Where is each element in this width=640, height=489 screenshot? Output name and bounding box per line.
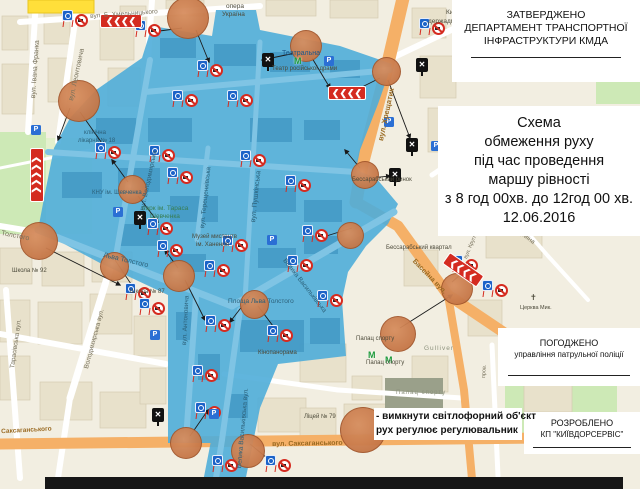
portable-road-signs-icon bbox=[265, 455, 291, 476]
map-label: Ліцей № 79 bbox=[304, 414, 336, 420]
no-entry-sign-icon bbox=[162, 149, 175, 162]
no-entry-sign-icon bbox=[253, 154, 266, 167]
portable-road-signs-icon bbox=[157, 240, 183, 261]
disabled-traffic-light-circle bbox=[163, 260, 195, 292]
no-entry-sign-icon bbox=[218, 319, 231, 332]
disabled-traffic-light-circle bbox=[167, 0, 209, 39]
map-label: вул. Антоновича bbox=[182, 296, 191, 346]
map-label: опера bbox=[226, 4, 244, 11]
map-label: Володимирська вул. bbox=[84, 309, 106, 370]
no-entry-sign-icon bbox=[280, 329, 293, 342]
no-entry-sign-icon bbox=[210, 64, 223, 77]
mandatory-direction-sign-icon bbox=[204, 260, 215, 271]
disabled-traffic-light-circle bbox=[380, 316, 416, 352]
map-label: Палац спорту bbox=[396, 390, 446, 396]
developed-line: РОЗРОБЛЕНО bbox=[524, 418, 640, 428]
map-label: Тарасівська вул. bbox=[10, 319, 23, 369]
mandatory-direction-sign-icon bbox=[157, 240, 168, 251]
map-label: вул. Хрещатик bbox=[377, 87, 396, 141]
map-label: Шевченка bbox=[150, 214, 180, 221]
agreed-line: управління патрульної поліції bbox=[498, 350, 640, 359]
portable-road-signs-icon bbox=[240, 150, 266, 171]
map-label: вул. Саксаганського bbox=[272, 440, 343, 448]
portable-road-signs-icon bbox=[147, 218, 173, 239]
map-label: Палац спорту bbox=[366, 360, 404, 366]
map-label: Музей мистецтв bbox=[192, 234, 237, 240]
approved-line: ЗАТВЕРДЖЕНО bbox=[452, 9, 640, 22]
no-entry-sign-icon bbox=[75, 14, 88, 27]
map-label: ім. Ханенків bbox=[196, 242, 229, 248]
map-label: вул. Терещенківська bbox=[200, 167, 213, 229]
no-entry-sign-icon bbox=[185, 94, 198, 107]
portable-road-signs-icon bbox=[62, 10, 88, 31]
map-label: лікарня № 18 bbox=[78, 138, 115, 144]
portable-road-signs-icon bbox=[172, 90, 198, 111]
map-label: Площа Льва Толстого bbox=[228, 299, 294, 306]
signature-line bbox=[471, 57, 621, 58]
portable-road-signs-icon bbox=[192, 365, 218, 386]
map-label: Палац спорту bbox=[356, 336, 394, 342]
no-entry-sign-icon bbox=[298, 179, 311, 192]
title-line: маршу рівності bbox=[438, 171, 640, 190]
map-label: Театральна bbox=[282, 50, 320, 57]
mandatory-direction-sign-icon bbox=[205, 315, 216, 326]
parking-sign-icon: Р bbox=[324, 56, 334, 66]
bottom-bar bbox=[45, 477, 623, 489]
portable-road-signs-icon bbox=[139, 298, 165, 319]
map-label: Школа № 92 bbox=[12, 268, 47, 274]
disabled-traffic-light-circle bbox=[372, 57, 401, 86]
disabled-traffic-light-circle bbox=[351, 161, 379, 189]
mandatory-direction-sign-icon bbox=[139, 298, 150, 309]
metro-station-icon: М bbox=[294, 56, 302, 66]
no-entry-sign-icon bbox=[495, 284, 508, 297]
title-line: обмеження руху bbox=[438, 133, 640, 152]
parking-sign-icon: Р bbox=[31, 125, 41, 135]
map-label: вул. Пушкінська bbox=[250, 171, 262, 223]
traffic-restriction-scheme: ❮❮❮❮❮❮❮❮❮❮❮❮❮❮❮❮❮✕✕✕✕✕✕РРРРРРРРМММвул. І… bbox=[0, 0, 640, 489]
crossed-traffic-light-icon: ✕ bbox=[152, 408, 164, 422]
map-label: клінічна bbox=[84, 130, 106, 136]
title-line: під час проведення bbox=[438, 152, 640, 171]
developed-line: КП "КИЇВДОРСЕРВІС" bbox=[524, 430, 640, 439]
legend-line: рух регулює регулювальник bbox=[376, 424, 520, 438]
mandatory-direction-sign-icon bbox=[302, 225, 313, 236]
disabled-traffic-light-circle bbox=[170, 427, 202, 459]
mandatory-direction-sign-icon bbox=[240, 150, 251, 161]
disabled-traffic-light-circle bbox=[337, 222, 364, 249]
legend: - вимкнути світлофорний об'єкт рух регул… bbox=[374, 408, 522, 440]
mandatory-direction-sign-icon bbox=[167, 167, 178, 178]
map-label: Кінопанорама bbox=[258, 350, 297, 356]
portable-road-signs-icon bbox=[95, 142, 121, 163]
map-label: вул. Івана Франка bbox=[30, 40, 41, 99]
map-label: пров. bbox=[482, 364, 488, 378]
mandatory-direction-sign-icon bbox=[482, 280, 493, 291]
agreed-line: ПОГОДЖЕНО bbox=[498, 338, 640, 348]
mandatory-direction-sign-icon bbox=[227, 90, 238, 101]
portable-road-signs-icon bbox=[212, 455, 238, 476]
mandatory-direction-sign-icon bbox=[197, 60, 208, 71]
map-label: Бессарабський квартал bbox=[386, 245, 452, 251]
portable-road-signs-icon bbox=[205, 315, 231, 336]
disabled-traffic-light-circle bbox=[58, 80, 100, 122]
portable-road-signs-icon bbox=[167, 167, 193, 188]
mandatory-direction-sign-icon bbox=[267, 325, 278, 336]
portable-road-signs-icon bbox=[197, 60, 223, 81]
title-line: з 8 год 00хв. до 12год 00 хв. bbox=[438, 190, 640, 209]
no-entry-sign-icon bbox=[330, 294, 343, 307]
parking-sign-icon: Р bbox=[267, 235, 277, 245]
map-label: Школа № 87 bbox=[130, 289, 165, 295]
legend-line: - вимкнути світлофорний об'єкт bbox=[376, 410, 520, 424]
crossed-traffic-light-icon: ✕ bbox=[262, 53, 274, 67]
parking-sign-icon: Р bbox=[150, 330, 160, 340]
map-label: вул. Саксаганського bbox=[0, 427, 52, 437]
closure-chevron-barrier-icon: ❮❮❮❮ bbox=[328, 86, 366, 100]
mandatory-direction-sign-icon bbox=[172, 90, 183, 101]
no-entry-sign-icon bbox=[278, 459, 291, 472]
no-entry-sign-icon bbox=[170, 244, 183, 257]
map-label: ✝ bbox=[530, 294, 537, 302]
approved-panel: ЗАТВЕРДЖЕНО ДЕПАРТАМЕНТ ТРАНСПОРТНОЇ ІНФ… bbox=[452, 0, 640, 82]
portable-road-signs-icon bbox=[285, 175, 311, 196]
parking-sign-icon: Р bbox=[113, 207, 123, 217]
crossed-traffic-light-icon: ✕ bbox=[406, 138, 418, 152]
title-date: 12.06.2016 bbox=[438, 209, 640, 228]
no-entry-sign-icon bbox=[205, 369, 218, 382]
crossed-traffic-light-icon: ✕ bbox=[416, 58, 428, 72]
mandatory-direction-sign-icon bbox=[265, 455, 276, 466]
no-entry-sign-icon bbox=[160, 222, 173, 235]
portable-road-signs-icon bbox=[204, 260, 230, 281]
title-line: Схема bbox=[438, 114, 640, 133]
developed-panel: РОЗРОБЛЕНО КП "КИЇВДОРСЕРВІС" bbox=[524, 412, 640, 454]
portable-road-signs-icon bbox=[267, 325, 293, 346]
mandatory-direction-sign-icon bbox=[285, 175, 296, 186]
map-label: Театр російської драми bbox=[272, 66, 337, 72]
closure-chevron-barrier-icon: ❮❮❮❮❮ bbox=[30, 148, 44, 202]
crossed-traffic-light-icon: ✕ bbox=[134, 211, 146, 225]
no-entry-sign-icon bbox=[235, 239, 248, 252]
portable-road-signs-icon bbox=[302, 225, 328, 246]
approved-line: ДЕПАРТАМЕНТ ТРАНСПОРТНОЇ bbox=[452, 22, 640, 35]
mandatory-direction-sign-icon bbox=[192, 365, 203, 376]
no-entry-sign-icon bbox=[148, 24, 161, 37]
no-entry-sign-icon bbox=[240, 94, 253, 107]
agreed-panel: ПОГОДЖЕНО управління патрульної поліції bbox=[498, 328, 640, 386]
no-entry-sign-icon bbox=[217, 264, 230, 277]
no-entry-sign-icon bbox=[108, 146, 121, 159]
mandatory-direction-sign-icon bbox=[62, 10, 73, 21]
signature-line bbox=[533, 447, 631, 448]
map-label: парк ім. Тараса bbox=[142, 206, 188, 213]
metro-station-icon: М bbox=[368, 350, 376, 360]
map-label: Бессарабський ринок bbox=[352, 177, 412, 183]
map-label: Україна bbox=[222, 12, 245, 19]
no-entry-sign-icon bbox=[152, 302, 165, 315]
map-label: Церква Мик. bbox=[520, 306, 552, 312]
map-label: КНУ ім. Шевченка bbox=[92, 190, 142, 196]
mandatory-direction-sign-icon bbox=[195, 402, 206, 413]
no-entry-sign-icon bbox=[300, 259, 313, 272]
scheme-title-panel: Схема обмеження руху під час проведення … bbox=[438, 106, 640, 236]
no-entry-sign-icon bbox=[180, 171, 193, 184]
mandatory-direction-sign-icon bbox=[212, 455, 223, 466]
parking-sign-icon: Р bbox=[209, 409, 219, 419]
portable-road-signs-icon bbox=[227, 90, 253, 111]
approved-line: ІНФРАСТРУКТУРИ КМДА bbox=[452, 35, 640, 48]
map-label: Gulliver bbox=[424, 346, 454, 353]
signature-line bbox=[508, 375, 630, 376]
portable-road-signs-icon bbox=[482, 280, 508, 301]
no-entry-sign-icon bbox=[315, 229, 328, 242]
